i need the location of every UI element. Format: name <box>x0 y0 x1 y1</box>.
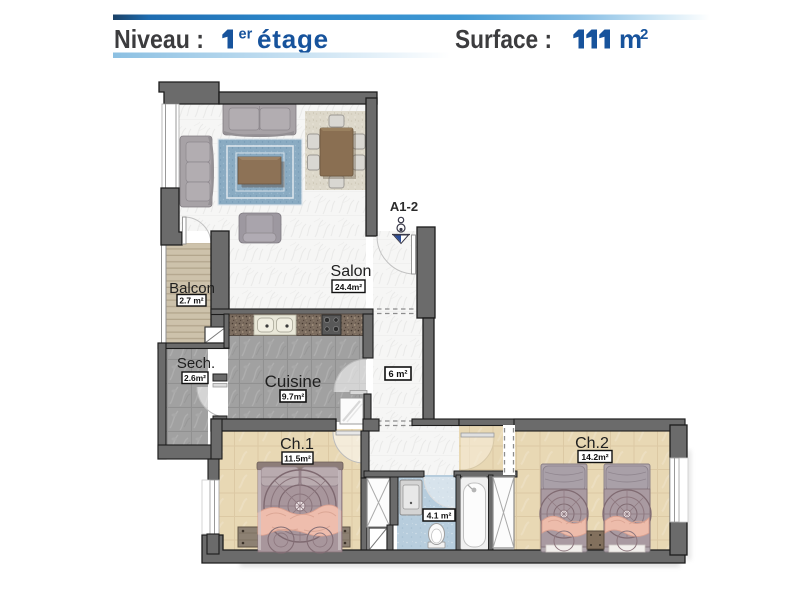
svg-text:9.7m²: 9.7m² <box>282 392 305 402</box>
svg-text:Ch.1: Ch.1 <box>280 436 314 453</box>
svg-text:4.1 m²: 4.1 m² <box>427 511 452 521</box>
svg-text:6 m²: 6 m² <box>389 369 408 379</box>
svg-text:m: m <box>619 24 642 54</box>
svg-text:11.5m²: 11.5m² <box>284 454 311 464</box>
svg-text:er: er <box>239 27 253 43</box>
svg-text:étage: étage <box>257 24 329 54</box>
svg-text:2.7 m²: 2.7 m² <box>179 296 203 306</box>
svg-text:14.2m²: 14.2m² <box>581 452 608 462</box>
svg-text:Cuisine: Cuisine <box>265 372 322 391</box>
svg-text:A1-2: A1-2 <box>390 199 418 214</box>
svg-text:Surface :: Surface : <box>455 24 552 54</box>
svg-text:Salon: Salon <box>331 263 372 280</box>
svg-text:2.6m²: 2.6m² <box>184 373 206 383</box>
svg-text:24.4m²: 24.4m² <box>335 282 362 292</box>
svg-text:Ch.2: Ch.2 <box>575 435 609 452</box>
svg-text:Sech.: Sech. <box>177 355 215 372</box>
svg-text:Niveau :: Niveau : <box>114 24 204 54</box>
svg-text:2: 2 <box>640 26 648 43</box>
